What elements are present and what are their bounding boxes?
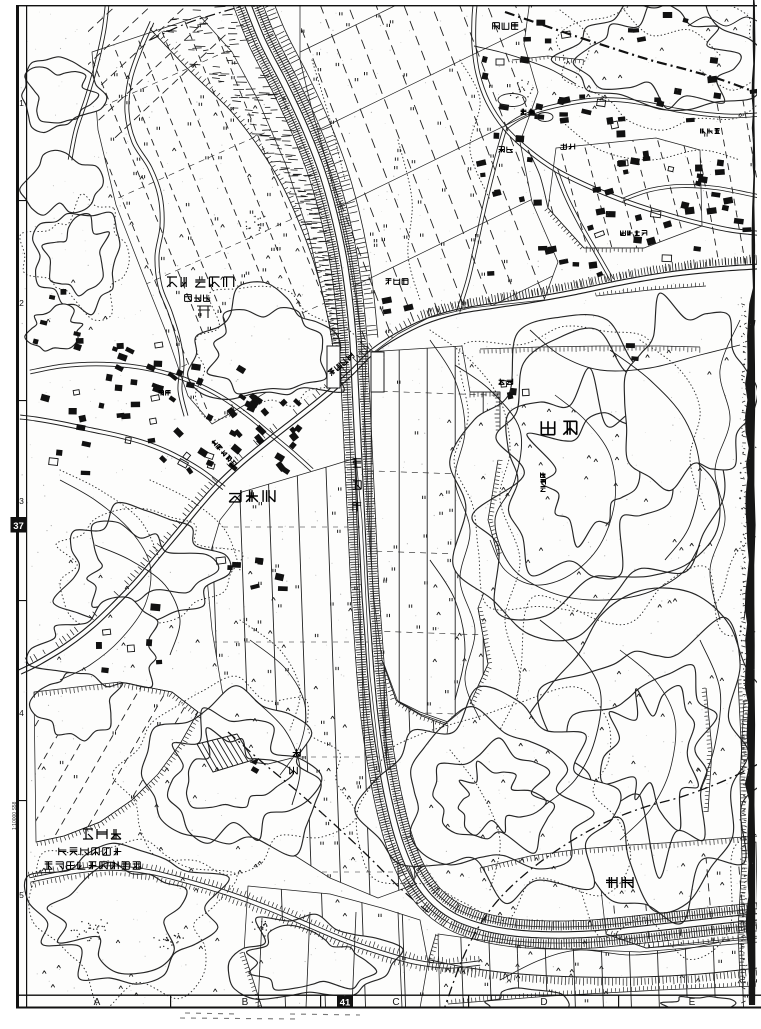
svg-text:2: 2 (19, 298, 24, 308)
svg-text:B: B (242, 997, 249, 1008)
svg-text:1:10000 S58: 1:10000 S58 (12, 801, 18, 830)
svg-text:3: 3 (19, 496, 24, 506)
svg-text:41: 41 (340, 998, 351, 1009)
svg-text:1: 1 (19, 98, 24, 108)
svg-text:A: A (94, 997, 101, 1008)
svg-text:D: D (540, 997, 547, 1008)
svg-text:E: E (689, 997, 696, 1008)
svg-text:37: 37 (13, 521, 24, 532)
svg-text:4: 4 (19, 708, 24, 718)
svg-text:C: C (392, 997, 399, 1008)
